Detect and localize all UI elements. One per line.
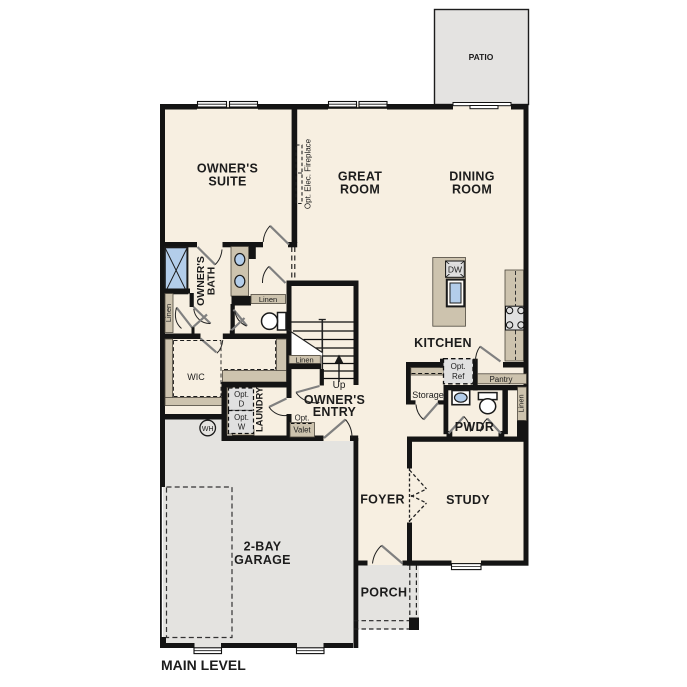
svg-text:KITCHEN: KITCHEN (414, 336, 472, 350)
svg-text:WIC: WIC (187, 372, 205, 382)
svg-text:ROOM: ROOM (340, 183, 380, 197)
svg-text:Valet: Valet (293, 426, 311, 435)
svg-text:GREAT: GREAT (338, 170, 382, 184)
svg-text:FOYER: FOYER (360, 493, 405, 507)
svg-text:Storage: Storage (412, 390, 444, 400)
svg-text:WH: WH (202, 426, 214, 433)
svg-text:MAIN LEVEL: MAIN LEVEL (161, 657, 246, 673)
svg-text:ENTRY: ENTRY (313, 405, 357, 419)
svg-text:DINING: DINING (449, 170, 495, 184)
svg-text:ROOM: ROOM (452, 183, 492, 197)
svg-text:Opt.: Opt. (234, 413, 249, 422)
svg-text:Pantry: Pantry (489, 375, 512, 384)
svg-text:OWNER'S: OWNER'S (197, 162, 258, 176)
svg-text:PATIO: PATIO (469, 52, 494, 62)
svg-text:STUDY: STUDY (446, 493, 490, 507)
svg-text:Linen: Linen (295, 356, 313, 365)
svg-text:Opt.: Opt. (451, 362, 466, 371)
svg-text:Up: Up (333, 380, 346, 391)
svg-text:Ref: Ref (452, 372, 465, 381)
svg-text:GARAGE: GARAGE (234, 553, 291, 567)
svg-text:LAUNDRY: LAUNDRY (255, 386, 265, 432)
svg-text:Linen: Linen (517, 394, 526, 412)
svg-text:PORCH: PORCH (361, 586, 408, 600)
svg-text:W: W (238, 423, 246, 432)
svg-text:DW: DW (448, 265, 462, 275)
svg-text:2-BAY: 2-BAY (244, 540, 282, 554)
svg-text:BATH: BATH (206, 267, 218, 295)
svg-text:Opt.: Opt. (295, 414, 310, 423)
svg-text:D: D (239, 400, 245, 409)
svg-text:PWDR: PWDR (455, 420, 494, 434)
svg-text:SUITE: SUITE (208, 175, 246, 189)
svg-text:Opt.: Opt. (234, 390, 249, 399)
svg-text:Linen: Linen (164, 304, 173, 322)
svg-text:Linen: Linen (259, 295, 277, 304)
svg-text:Opt. Elec. Fireplace: Opt. Elec. Fireplace (304, 138, 313, 209)
